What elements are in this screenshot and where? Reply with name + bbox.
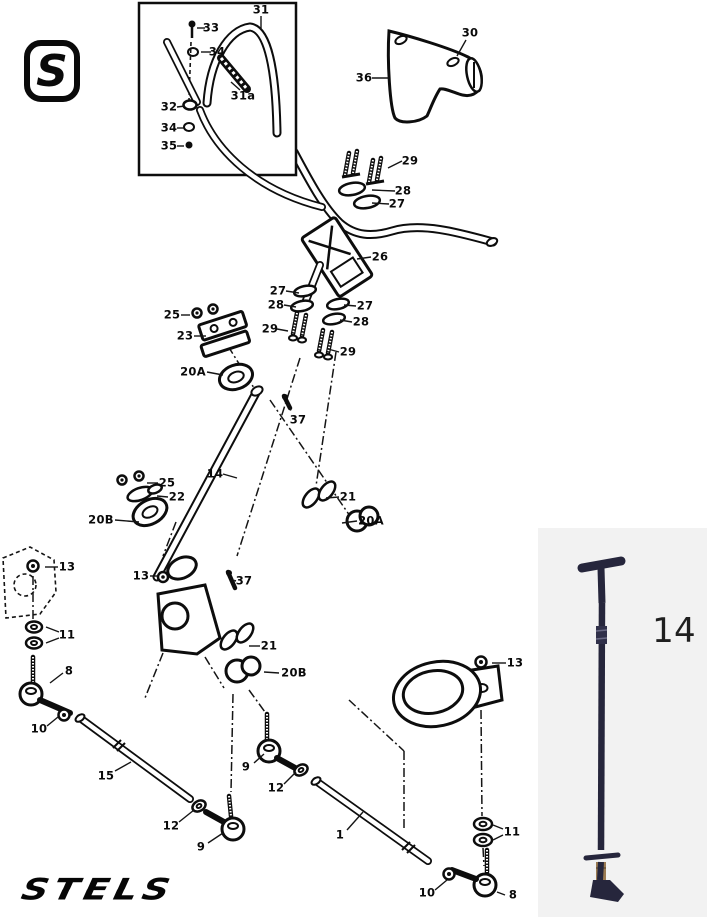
part-label-27: 27: [357, 300, 374, 312]
part-label-31a: 31a: [231, 90, 256, 102]
part-label-34: 34: [161, 122, 178, 134]
part-14-photo: [538, 528, 707, 917]
part-label-37: 37: [290, 414, 307, 426]
part-label-37: 37: [236, 575, 253, 587]
part-link-21-lower: [217, 621, 260, 682]
part-label-26: 26: [372, 251, 389, 263]
part-label-33: 33: [203, 22, 220, 34]
centerlines: [33, 346, 484, 866]
part-bracket-23: [193, 305, 252, 357]
part-label-36: 36: [356, 72, 373, 84]
part-label-31: 31: [253, 4, 270, 16]
parts-diagram-page: S: [0, 0, 707, 917]
part-ring-clamp: [387, 654, 502, 735]
part-label-28: 28: [268, 299, 285, 311]
part-label-9: 9: [242, 761, 250, 773]
part-label-11: 11: [59, 629, 76, 641]
part-label-11: 11: [504, 826, 521, 838]
part-label-1: 1: [336, 829, 344, 841]
part-label-25: 25: [164, 309, 181, 321]
part-label-21: 21: [261, 640, 278, 652]
part-label-21: 21: [340, 491, 357, 503]
part-label-20a: 20A: [358, 515, 384, 527]
part-label-13: 13: [507, 657, 524, 669]
part-label-20a: 20A: [180, 366, 206, 378]
part-label-13: 13: [59, 561, 76, 573]
part-label-13: 13: [133, 570, 150, 582]
part-label-30: 30: [462, 27, 479, 39]
part-label-35: 35: [161, 140, 178, 152]
part-label-15: 15: [98, 770, 115, 782]
part-label-8: 8: [509, 889, 517, 901]
part-label-8: 8: [65, 665, 73, 677]
part-tie-rod-end-9: [258, 714, 310, 778]
part-label-9: 9: [197, 841, 205, 853]
part-label-20b: 20B: [88, 514, 114, 526]
part-label-29: 29: [262, 323, 279, 335]
part-clamp-20a-upper: [216, 360, 256, 394]
part-right-fastener-column: [444, 818, 497, 896]
part-label-32: 32: [161, 101, 178, 113]
part-label-22: 22: [169, 491, 186, 503]
part-label-14: 14: [207, 468, 224, 480]
part-label-27: 27: [270, 285, 287, 297]
part-clamp-studs-top: [338, 151, 384, 210]
part-rod-1: [310, 776, 428, 861]
part-label-29: 29: [402, 155, 419, 167]
part-label-12: 12: [268, 782, 285, 794]
brand-wordmark: STELS: [18, 872, 178, 907]
part-label-25: 25: [159, 477, 176, 489]
part-label-20b: 20B: [281, 667, 307, 679]
part-label-10: 10: [419, 887, 436, 899]
part-label-27: 27: [389, 198, 406, 210]
part-grip-36: [388, 31, 484, 122]
part-label-34: 34: [209, 46, 226, 58]
part-label-14: 14: [652, 614, 696, 648]
part-label-28: 28: [353, 316, 370, 328]
part-label-29: 29: [340, 346, 357, 358]
part-label-10: 10: [31, 723, 48, 735]
part-label-28: 28: [395, 185, 412, 197]
part-14-photo-panel: [538, 528, 707, 917]
part-label-23: 23: [177, 330, 194, 342]
part-label-12: 12: [163, 820, 180, 832]
